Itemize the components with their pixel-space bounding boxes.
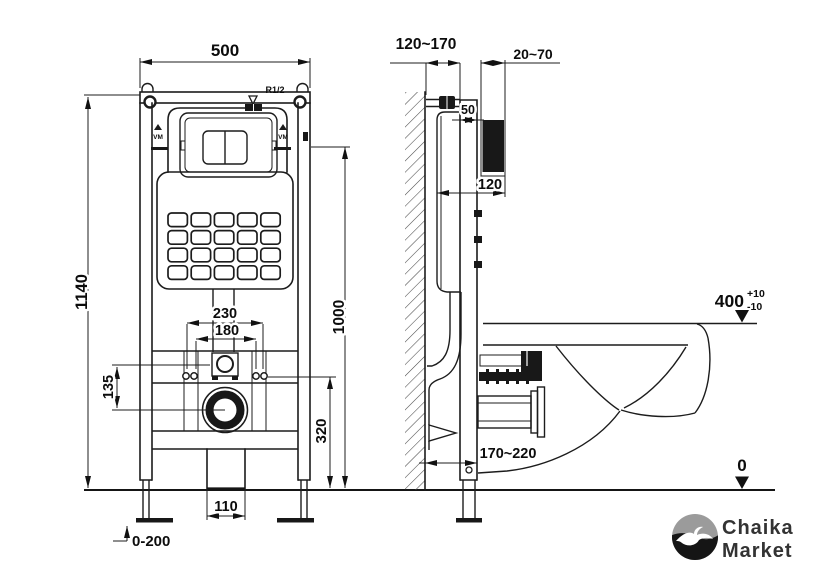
dim-rail-depth: 50 — [461, 103, 475, 117]
hanger-tab-left — [142, 84, 153, 93]
column-clips — [474, 210, 482, 268]
plate-mark-right: VM — [278, 134, 288, 141]
side-view — [405, 60, 757, 523]
flush-plate-grid — [168, 213, 280, 279]
dim-inlet-to-drain: 135 — [101, 375, 117, 399]
frame-column — [460, 100, 477, 480]
installation-frame-drawing: VM VM 500 — [0, 0, 840, 574]
wall-hatch — [405, 92, 425, 490]
inlet-foot-right — [232, 376, 238, 380]
hanger-tab-right — [297, 84, 308, 93]
flange-inner — [531, 391, 538, 433]
side-foot — [456, 518, 482, 523]
triangle-mark-right — [279, 124, 287, 130]
dim-floor-level: 0 — [737, 456, 746, 475]
dim-frame-width: 500 — [211, 41, 239, 60]
logo-text-top: Chaika — [722, 517, 794, 539]
dim-depth-bottom: 170~220 — [480, 446, 537, 462]
drain-connector — [478, 396, 531, 428]
dim-finish-thickness: 20~70 — [513, 46, 553, 62]
side-leg — [460, 480, 477, 518]
dim-depth-top: 120~170 — [396, 36, 457, 53]
dim-tolerance-plus: +10 — [747, 288, 765, 300]
brand-logo: Chaika Market — [670, 512, 794, 564]
flange-outer — [538, 387, 545, 437]
dim-tolerance-minus: -10 — [747, 301, 762, 313]
drain-box — [207, 449, 245, 490]
front-view: VM VM — [136, 84, 314, 523]
bottom-rails — [152, 431, 298, 449]
dim-drain-box-width: 110 — [214, 499, 237, 515]
inlet-port — [217, 356, 233, 372]
flush-plate-frame — [180, 113, 277, 177]
level-marker-400 — [735, 310, 749, 323]
logo-text-bottom: Market — [722, 540, 792, 562]
dim-leg-adjust: 0-200 — [132, 533, 170, 550]
dim-bowl-height: 400 — [715, 291, 744, 311]
dim-fixing-inner: 180 — [215, 323, 239, 339]
inlet-foot-left — [212, 376, 218, 380]
dim-fixing-outer: 230 — [213, 306, 237, 322]
dim-housing-depth: 120 — [478, 177, 502, 193]
mount-bolt-left — [145, 97, 156, 108]
dim-fixing-height: 320 — [313, 418, 330, 443]
triangle-mark-left — [154, 124, 162, 130]
flush-pipe-side — [427, 292, 450, 366]
dim-flush-height: 1000 — [331, 300, 348, 334]
rail-clip — [303, 132, 308, 141]
plate-clip-left — [181, 141, 185, 150]
dim-frame-height: 1140 — [73, 274, 91, 310]
plate-mark-left: VM — [153, 134, 163, 141]
dash-mark-right — [274, 147, 291, 150]
label-water-inlet: R1/2 — [265, 85, 284, 95]
drain-elbow — [429, 425, 456, 441]
leg-adjust-hole — [466, 467, 472, 473]
foot-plate-left — [136, 518, 173, 523]
technical-drawing-page: VM VM 500 — [0, 0, 840, 574]
flush-housing — [483, 120, 505, 172]
mount-bolt-right — [295, 97, 306, 108]
dash-mark-left — [151, 147, 168, 150]
fixing-block — [521, 351, 542, 381]
foot-plate-right — [277, 518, 314, 523]
level-marker-0 — [735, 477, 749, 490]
front-view-dimensions: 500 1140 R1/2 230 180 135 320 1000 110 — [73, 41, 350, 550]
